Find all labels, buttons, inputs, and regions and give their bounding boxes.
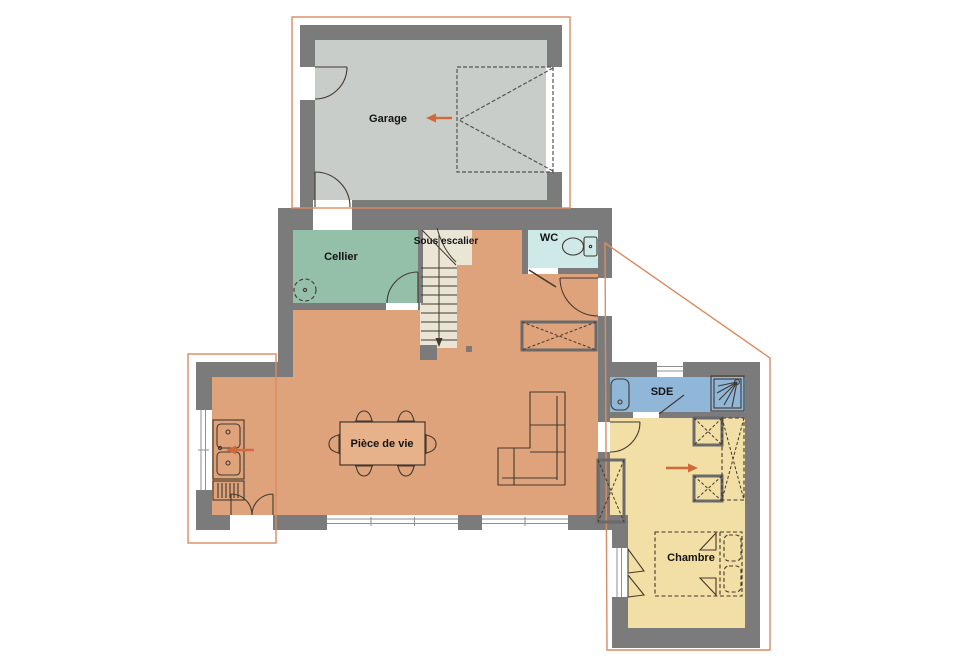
garage-label: Garage (369, 113, 407, 125)
wall (300, 25, 562, 40)
floor-plan: Garage Cellier Sous escalier WC Pièce de… (0, 0, 960, 664)
sous-escalier-label: Sous escalier (414, 236, 479, 247)
chambre-label: Chambre (667, 552, 715, 564)
door-gap (313, 200, 352, 230)
wc-label: WC (540, 232, 558, 244)
window-gap (612, 548, 628, 597)
door-gap (598, 422, 610, 452)
piece-de-vie-label: Pièce de vie (351, 438, 414, 450)
wall (278, 208, 293, 377)
door-gap (300, 67, 315, 100)
floor-plan-page: Garage Cellier Sous escalier WC Pièce de… (0, 0, 960, 664)
cellier-label: Cellier (324, 251, 358, 263)
wall (522, 228, 528, 274)
window-gap (657, 362, 683, 377)
door-gap (386, 303, 418, 310)
wall (300, 25, 315, 215)
wall (610, 362, 760, 377)
window-gap (327, 515, 458, 530)
garage-door-gap (546, 67, 562, 172)
wall (612, 628, 760, 648)
wall (610, 412, 745, 418)
french-door-gap (230, 515, 273, 530)
wall (466, 346, 472, 352)
wall (745, 362, 760, 648)
cellier-floor (293, 230, 420, 303)
door-gap (633, 412, 659, 418)
sde-label: SDE (651, 386, 674, 398)
wall (420, 345, 437, 360)
